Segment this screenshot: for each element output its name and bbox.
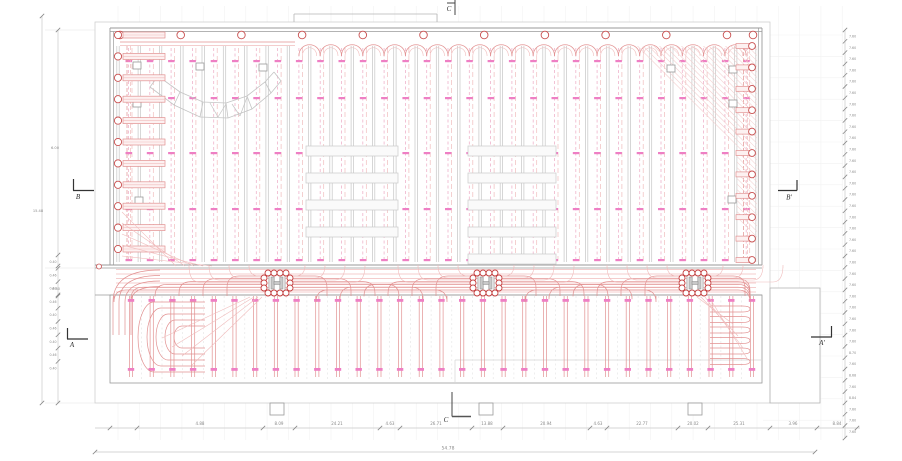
section-label-C-bottom: C: [444, 416, 449, 424]
svg-text:4.88: 4.88: [196, 421, 205, 426]
bottom-dimension-chain: 4.888.0924.214.6326.7113.8820.944.6322.7…: [95, 421, 860, 430]
svg-text:7.60: 7.60: [849, 148, 856, 152]
svg-text:7.60: 7.60: [849, 340, 856, 344]
svg-text:0.46: 0.46: [49, 353, 56, 357]
section-label-B-prime: B': [786, 194, 792, 202]
svg-text:0.46: 0.46: [49, 273, 56, 277]
svg-text:7.60: 7.60: [849, 215, 856, 219]
svg-text:7.60: 7.60: [849, 35, 856, 39]
svg-text:7.60: 7.60: [849, 419, 856, 423]
svg-text:4.63: 4.63: [386, 421, 395, 426]
svg-text:20.94: 20.94: [540, 421, 552, 426]
svg-text:7.60: 7.60: [849, 80, 856, 84]
floor-plan-drawing: 4.888.0924.214.6326.7113.8820.944.6322.7…: [0, 0, 902, 461]
svg-text:7.60: 7.60: [849, 114, 856, 118]
svg-text:7.60: 7.60: [849, 181, 856, 185]
svg-text:7.60: 7.60: [849, 283, 856, 287]
section-label-A: A: [69, 341, 75, 349]
svg-text:8.09: 8.09: [275, 421, 284, 426]
svg-text:7.60: 7.60: [849, 159, 856, 163]
svg-text:0.40: 0.40: [49, 260, 56, 264]
svg-text:7.60: 7.60: [849, 249, 856, 253]
svg-text:0.40: 0.40: [49, 340, 56, 344]
svg-text:24.21: 24.21: [331, 421, 343, 426]
svg-text:7.60: 7.60: [849, 385, 856, 389]
svg-text:0.46: 0.46: [49, 300, 56, 304]
svg-text:7.60: 7.60: [849, 272, 856, 276]
svg-text:7.60: 7.60: [849, 170, 856, 174]
svg-text:7.60: 7.60: [849, 317, 856, 321]
svg-text:7.60: 7.60: [849, 102, 856, 106]
svg-text:22.77: 22.77: [636, 421, 648, 426]
svg-text:8.70: 8.70: [849, 351, 856, 355]
section-label-B: B: [76, 193, 81, 201]
svg-text:15.48: 15.48: [33, 209, 44, 213]
section-label-A-prime: A': [818, 339, 825, 347]
svg-text:8.68: 8.68: [849, 374, 856, 378]
svg-text:7.60: 7.60: [849, 227, 856, 231]
svg-text:7.60: 7.60: [849, 407, 856, 411]
section-label-C-top: C: [447, 5, 452, 13]
svg-text:54.78: 54.78: [442, 446, 455, 452]
svg-text:7.60: 7.60: [849, 46, 856, 50]
svg-text:8.84: 8.84: [849, 396, 856, 400]
svg-text:7.60: 7.60: [849, 136, 856, 140]
svg-text:3.96: 3.96: [789, 421, 798, 426]
svg-text:7.60: 7.60: [849, 204, 856, 208]
svg-text:7.60: 7.60: [849, 91, 856, 95]
svg-text:26.71: 26.71: [430, 421, 442, 426]
svg-text:7.60: 7.60: [849, 328, 856, 332]
svg-text:7.60: 7.60: [849, 362, 856, 366]
overall-dimension: 54.78: [93, 446, 817, 455]
svg-text:7.60: 7.60: [849, 125, 856, 129]
svg-text:7.60: 7.60: [849, 57, 856, 61]
svg-text:0.46: 0.46: [49, 327, 56, 331]
svg-text:4.63: 4.63: [594, 421, 603, 426]
svg-text:7.60: 7.60: [849, 294, 856, 298]
cad-viewport: 4.888.0924.214.6326.7113.8820.944.6322.7…: [0, 0, 902, 461]
svg-text:0.40: 0.40: [49, 287, 56, 291]
svg-text:0.40: 0.40: [49, 313, 56, 317]
svg-text:8.84: 8.84: [833, 421, 842, 426]
svg-text:7.60: 7.60: [849, 238, 856, 242]
svg-text:7.60: 7.60: [849, 306, 856, 310]
right-dimension-chain: 7.607.607.607.607.607.607.607.607.607.60…: [843, 28, 856, 440]
svg-text:7.60: 7.60: [849, 261, 856, 265]
svg-text:25.31: 25.31: [733, 421, 745, 426]
svg-text:7.60: 7.60: [849, 430, 856, 434]
left-dimension-chain: 6.0015.480.600.400.460.400.460.400.460.4…: [33, 14, 61, 405]
svg-text:7.60: 7.60: [849, 193, 856, 197]
svg-text:0.40: 0.40: [49, 366, 56, 370]
svg-text:6.00: 6.00: [51, 146, 60, 150]
svg-text:20.02: 20.02: [687, 421, 699, 426]
svg-text:7.60: 7.60: [849, 68, 856, 72]
svg-text:13.88: 13.88: [481, 421, 493, 426]
